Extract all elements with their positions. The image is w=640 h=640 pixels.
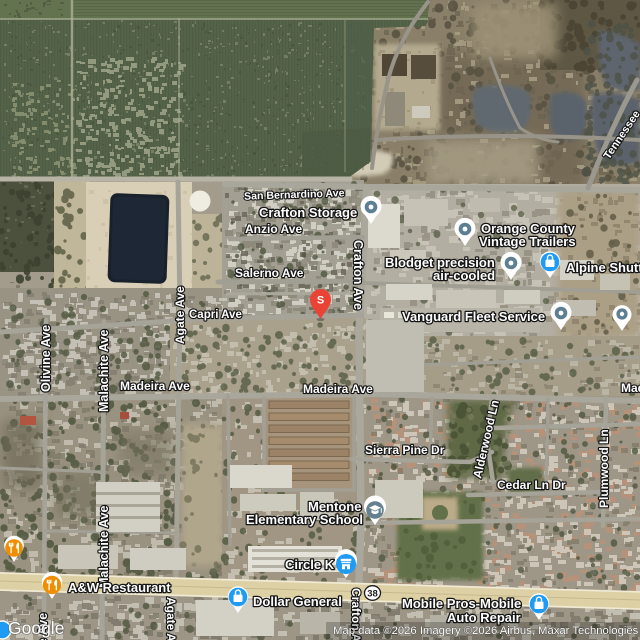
svg-text:Olivine Ave: Olivine Ave	[39, 325, 53, 392]
svg-text:Madeira Ave: Madeira Ave	[303, 382, 373, 396]
svg-text:Elementary School: Elementary School	[246, 512, 363, 527]
svg-text:Crafton Storage: Crafton Storage	[259, 205, 357, 220]
svg-text:Sierra Pine Dr: Sierra Pine Dr	[365, 443, 445, 457]
svg-text:38: 38	[367, 589, 378, 600]
svg-text:S: S	[317, 295, 324, 307]
svg-text:Agate Ave: Agate Ave	[173, 286, 187, 344]
svg-text:Anzio Ave: Anzio Ave	[245, 222, 302, 236]
svg-text:Vintage Trailers: Vintage Trailers	[479, 234, 576, 249]
svg-text:Malachite Ave: Malachite Ave	[97, 330, 111, 412]
svg-text:Dollar General: Dollar General	[253, 594, 342, 609]
svg-text:Salerno Ave: Salerno Ave	[235, 266, 304, 280]
svg-text:Plumwood Ln: Plumwood Ln	[597, 429, 611, 508]
svg-text:Mobile Pros-Mobile: Mobile Pros-Mobile	[402, 596, 521, 611]
svg-text:Malachite Ave: Malachite Ave	[97, 506, 111, 588]
svg-text:A&W Restaurant: A&W Restaurant	[68, 580, 171, 595]
svg-text:Madeira Ave: Madeira Ave	[621, 381, 640, 395]
svg-text:Google: Google	[8, 618, 64, 638]
svg-text:Vanguard Fleet Service: Vanguard Fleet Service	[402, 309, 545, 324]
svg-text:Crafton Ave: Crafton Ave	[351, 240, 365, 310]
svg-text:air-cooled: air-cooled	[433, 268, 495, 283]
svg-text:Map data ©2026 Imagery ©2026 A: Map data ©2026 Imagery ©2026 Airbus, Max…	[333, 625, 639, 637]
svg-text:Alpine Shutte: Alpine Shutte	[566, 260, 640, 275]
svg-text:Madeira Ave: Madeira Ave	[120, 379, 190, 393]
svg-text:Cedar Ln Dr: Cedar Ln Dr	[497, 478, 566, 492]
svg-text:Agate Ave: Agate Ave	[164, 597, 178, 640]
svg-text:Capri Ave: Capri Ave	[189, 309, 242, 321]
svg-text:Circle K: Circle K	[285, 557, 335, 572]
